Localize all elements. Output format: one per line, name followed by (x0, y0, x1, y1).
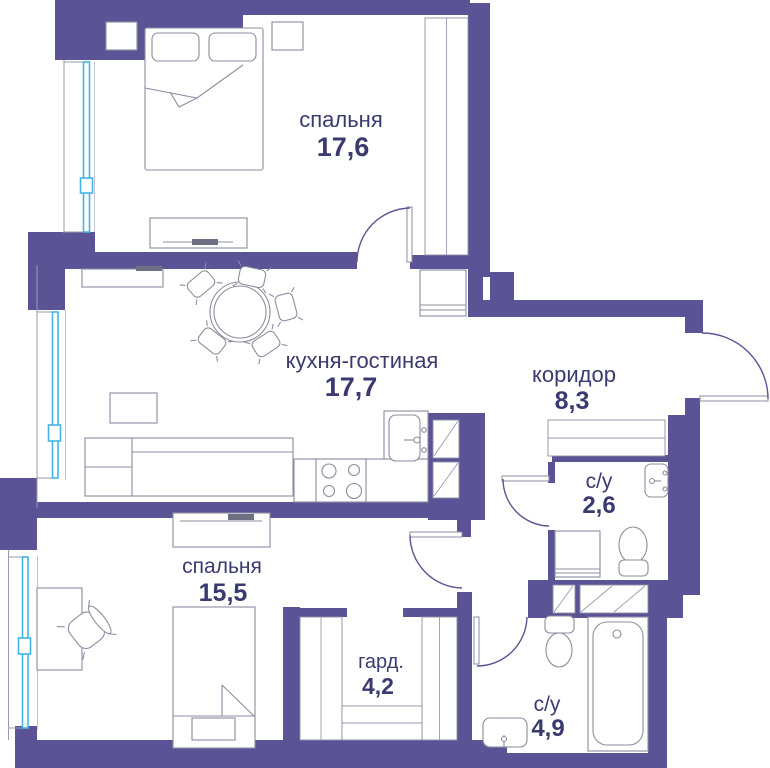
room-label: с/у (534, 693, 561, 716)
double-bed-icon (145, 28, 263, 170)
room-area: 4,2 (362, 673, 394, 699)
room-label: спальня (182, 555, 262, 578)
nightstand-icon (106, 22, 137, 50)
room-area: 8,3 (555, 387, 590, 415)
sofa-icon (85, 438, 293, 496)
closet-hatch-icon (548, 420, 665, 456)
tv-stand-icon (82, 266, 163, 287)
floor-plan: спальня 17,6 кухня-гостиная 17,7 коридор… (0, 0, 770, 768)
single-bed-icon (173, 607, 255, 748)
room-label: спальня (299, 107, 383, 132)
floor-plan-page: спальня 17,6 кухня-гостиная 17,7 коридор… (0, 0, 770, 768)
room-label: с/у (586, 470, 613, 493)
room-area: 17,6 (317, 132, 370, 162)
tv-stand-icon (150, 218, 247, 248)
room-area: 15,5 (199, 579, 248, 607)
room-label: гард. (358, 651, 404, 673)
toilet-icon (545, 616, 574, 667)
room-area: 2,6 (582, 492, 615, 519)
wall-sink-icon (645, 464, 668, 497)
room-area: 4,9 (531, 715, 564, 742)
bathtub-icon (588, 617, 648, 751)
dining-table-icon (180, 261, 303, 364)
room-label: кухня-гостиная (286, 348, 439, 373)
closet-hatch-icon (300, 617, 342, 740)
washing-machine-icon (555, 531, 600, 577)
toilet-icon (619, 527, 648, 576)
dresser-icon (173, 513, 270, 547)
door-icon (357, 207, 412, 262)
bathroom-sink-icon (483, 718, 527, 748)
furniture-bathroom-large (483, 616, 648, 751)
room-label: коридор (532, 362, 616, 387)
room-area: 17,7 (325, 372, 378, 402)
window-icon (9, 550, 38, 740)
fridge-icon (420, 270, 466, 316)
closet-hatch-icon (342, 706, 422, 740)
door-icon (474, 617, 527, 666)
entry-door-icon (700, 333, 768, 401)
closet-hatch-icon (425, 18, 468, 255)
closet-hatch-icon (422, 617, 457, 740)
stove-icon (316, 459, 366, 502)
nightstand-icon (272, 22, 303, 50)
window-icon (64, 60, 95, 233)
door-icon (502, 476, 549, 526)
furniture-bedroom-bottom (37, 513, 270, 748)
coffee-table-icon (110, 393, 157, 423)
furniture-kitchen-living (82, 261, 466, 502)
door-icon (410, 532, 462, 588)
vent-shaft-icon (553, 585, 648, 613)
